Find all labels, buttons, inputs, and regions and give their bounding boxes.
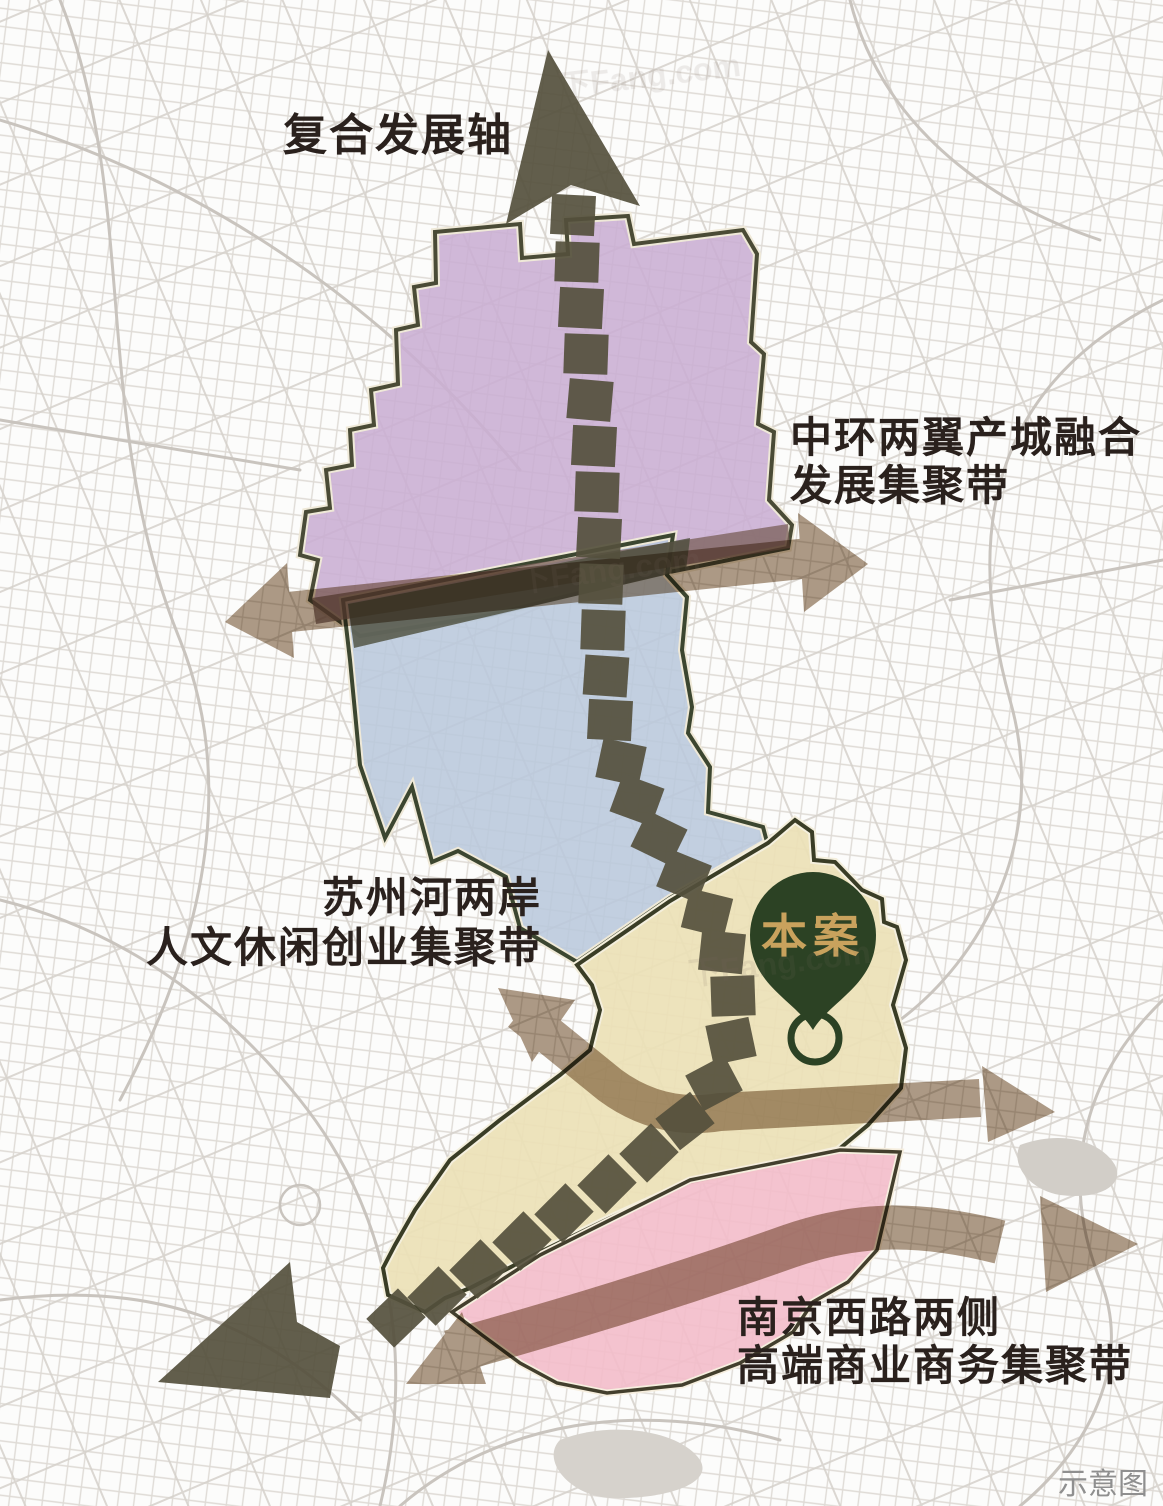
label-south-belt-line1: 南京西路两侧 bbox=[737, 1294, 1001, 1341]
label-south-belt-line2: 高端商业商务集聚带 bbox=[737, 1342, 1133, 1389]
schematic-map: 本案 下Fang.com 下Fang.com 下Fang.com 复合发展轴 中… bbox=[0, 0, 1163, 1506]
label-east-belt-line2: 发展集聚带 bbox=[790, 462, 1010, 509]
caption-schematic: 示意图 bbox=[1058, 1468, 1148, 1501]
label-east-belt-line1: 中环两翼产城融合 bbox=[790, 414, 1142, 461]
schematic-map-page: 本案 下Fang.com 下Fang.com 下Fang.com 复合发展轴 中… bbox=[0, 0, 1163, 1506]
label-composite-axis: 复合发展轴 bbox=[283, 111, 513, 160]
label-west-belt-line2: 人文休闲创业集聚带 bbox=[146, 924, 542, 971]
label-west-belt-line1: 苏州河两岸 bbox=[322, 874, 542, 921]
